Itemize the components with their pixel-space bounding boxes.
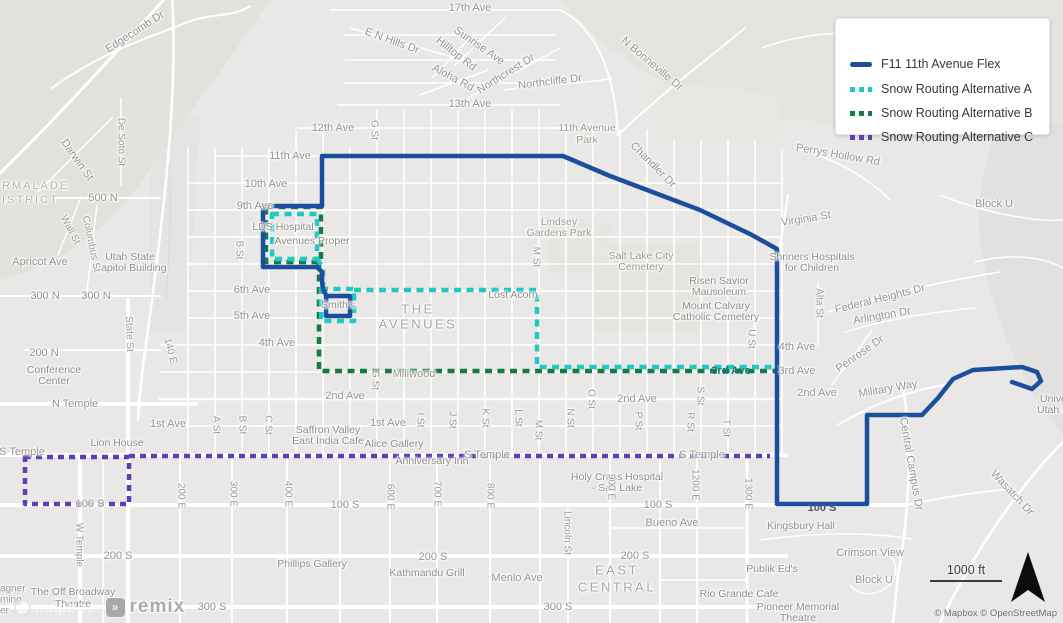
legend-label: Snow Routing Alternative B [881, 106, 1032, 120]
alt-c-line-swatch [850, 135, 872, 140]
legend-item-alt-b: Snow Routing Alternative B [850, 104, 1032, 122]
watermark: mapbox » remix [14, 596, 185, 618]
legend-item-alt-c: Snow Routing Alternative C [850, 128, 1033, 146]
mapbox-logo-icon [14, 599, 31, 616]
scale-bar: 1000 ft [930, 563, 1002, 582]
eleventh-avenue-park-area [648, 86, 778, 140]
legend-item-alt-a: Snow Routing Alternative A [850, 80, 1032, 98]
remix-logo-icon: » [106, 598, 125, 617]
map-canvas[interactable]: RMALADEISTRICTTHEAVENUESEASTCENTRAL17th … [0, 0, 1063, 623]
scale-bar-label: 1000 ft [930, 563, 1002, 577]
alt-a-line-swatch [850, 87, 872, 92]
alt-b-line-swatch [850, 111, 872, 116]
legend-label: Snow Routing Alternative A [881, 82, 1032, 96]
legend-item-f11: F11 11th Avenue Flex [850, 55, 1001, 73]
legend-label: Snow Routing Alternative C [881, 130, 1033, 144]
remix-wordmark: remix [130, 596, 186, 618]
f11-line-swatch [850, 62, 872, 67]
route-legend: F11 11th Avenue Flex Snow Routing Altern… [835, 18, 1050, 135]
lindsey-gardens-park-area [548, 223, 610, 273]
map-attribution[interactable]: © Mapbox © OpenStreetMap [934, 608, 1057, 619]
scale-bar-line [930, 580, 1002, 582]
legend-label: F11 11th Avenue Flex [881, 57, 1001, 71]
mapbox-wordmark: mapbox [35, 599, 96, 616]
